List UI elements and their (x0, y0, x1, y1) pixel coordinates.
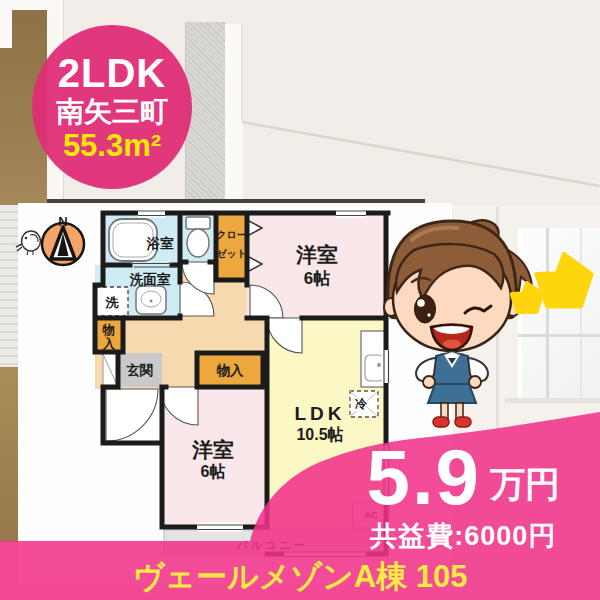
property-name: ヴェールメゾンA棟 105 (0, 556, 600, 598)
price-block: 5.9 万円 共益費:6000円 (367, 444, 560, 554)
badge-area: 55.3m² (63, 128, 161, 164)
badge-town: 南矢三町 (56, 96, 168, 128)
listing-image: 浴室 洗面室 洗 物 入 クロー ゼット 洋室 6帖 LDK 10.5帖 洋室 … (0, 0, 600, 600)
rent-amount: 5.9 (367, 444, 481, 510)
common-fee: 共益費:6000円 (367, 518, 560, 554)
property-badge: 2LDK 南矢三町 55.3m² (32, 25, 192, 189)
badge-layout: 2LDK (58, 50, 166, 96)
rent-unit: 万円 (490, 461, 560, 508)
